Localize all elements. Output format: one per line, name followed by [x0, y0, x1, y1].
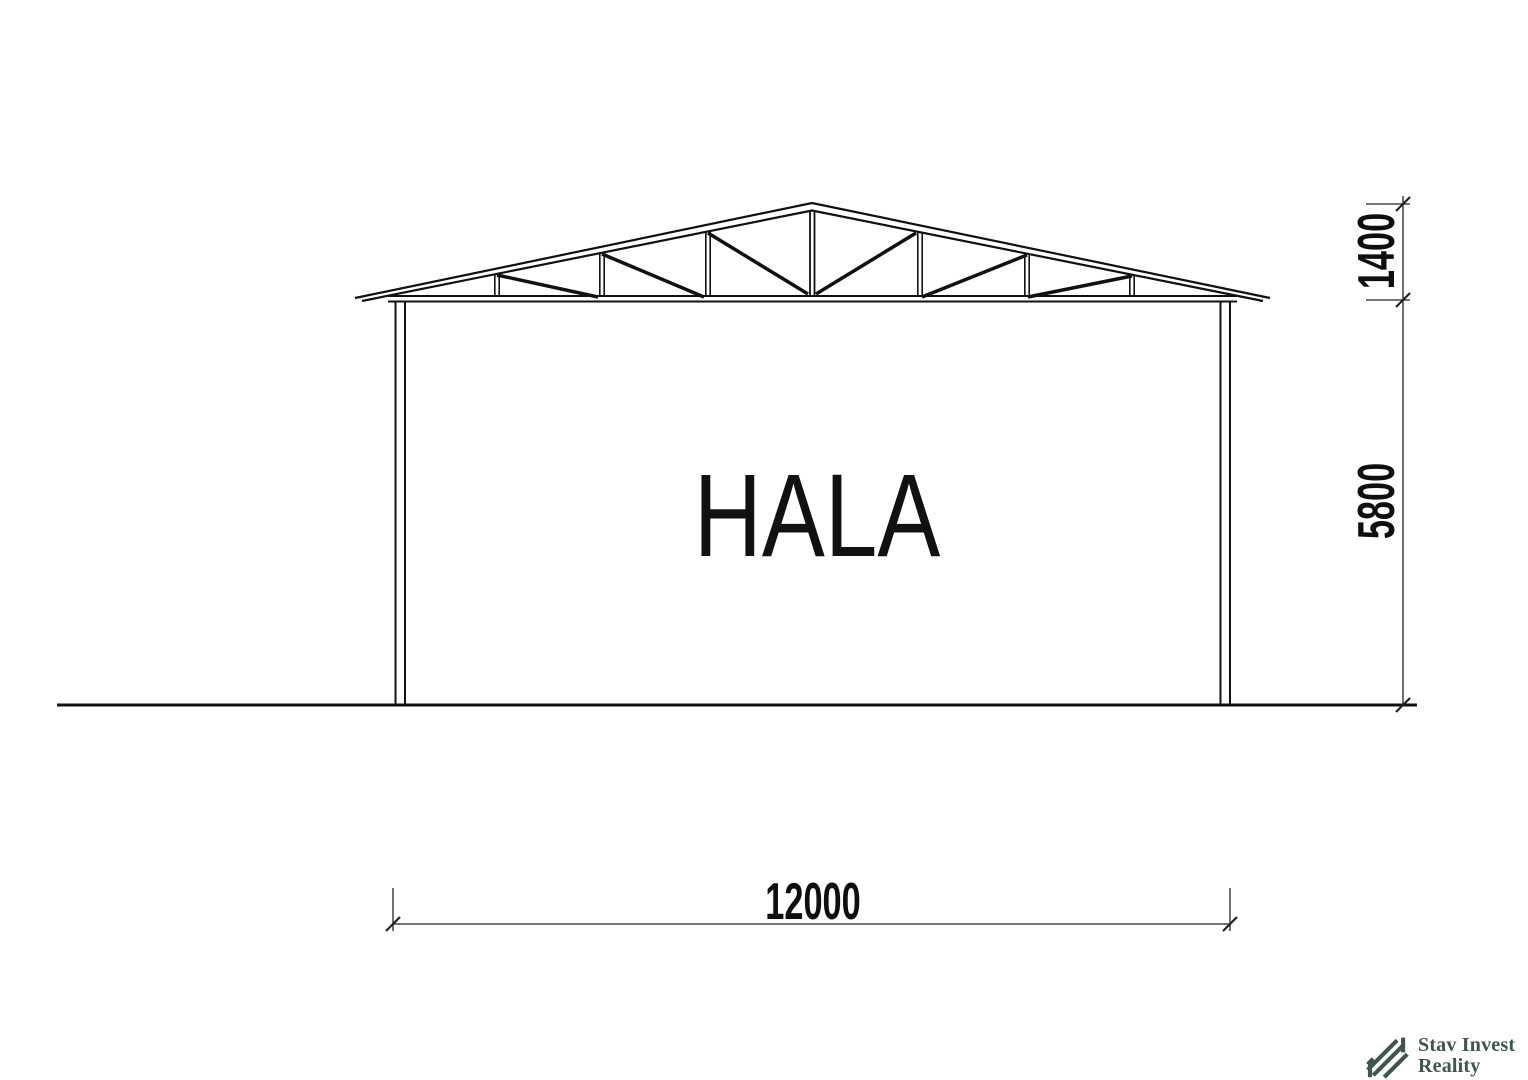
- elevation-drawing: HALA 12000 1400 5800 Stav Invest Reality: [0, 0, 1528, 1080]
- dimension-text-wall-height: 5800: [1351, 463, 1403, 539]
- roof-inner-chord: [362, 211, 1263, 302]
- right-column: [1221, 301, 1231, 704]
- truss-bottom-chord: [388, 296, 1237, 302]
- company-logo: Stav Invest Reality: [1364, 1032, 1515, 1080]
- left-column: [396, 301, 406, 704]
- roof-outer-chord: [355, 203, 1270, 298]
- company-logo-text: Stav Invest Reality: [1418, 1035, 1515, 1077]
- dimension-text-width: 12000: [765, 876, 860, 928]
- dimension-text-roof-height: 1400: [1351, 213, 1403, 289]
- logo-line1: Stav Invest: [1418, 1035, 1515, 1056]
- stav-invest-logo-icon: [1364, 1032, 1410, 1080]
- truss-king-post: [810, 212, 815, 296]
- logo-line2: Reality: [1418, 1056, 1515, 1077]
- roof-truss: [355, 203, 1270, 302]
- room-label: HALA: [694, 457, 941, 575]
